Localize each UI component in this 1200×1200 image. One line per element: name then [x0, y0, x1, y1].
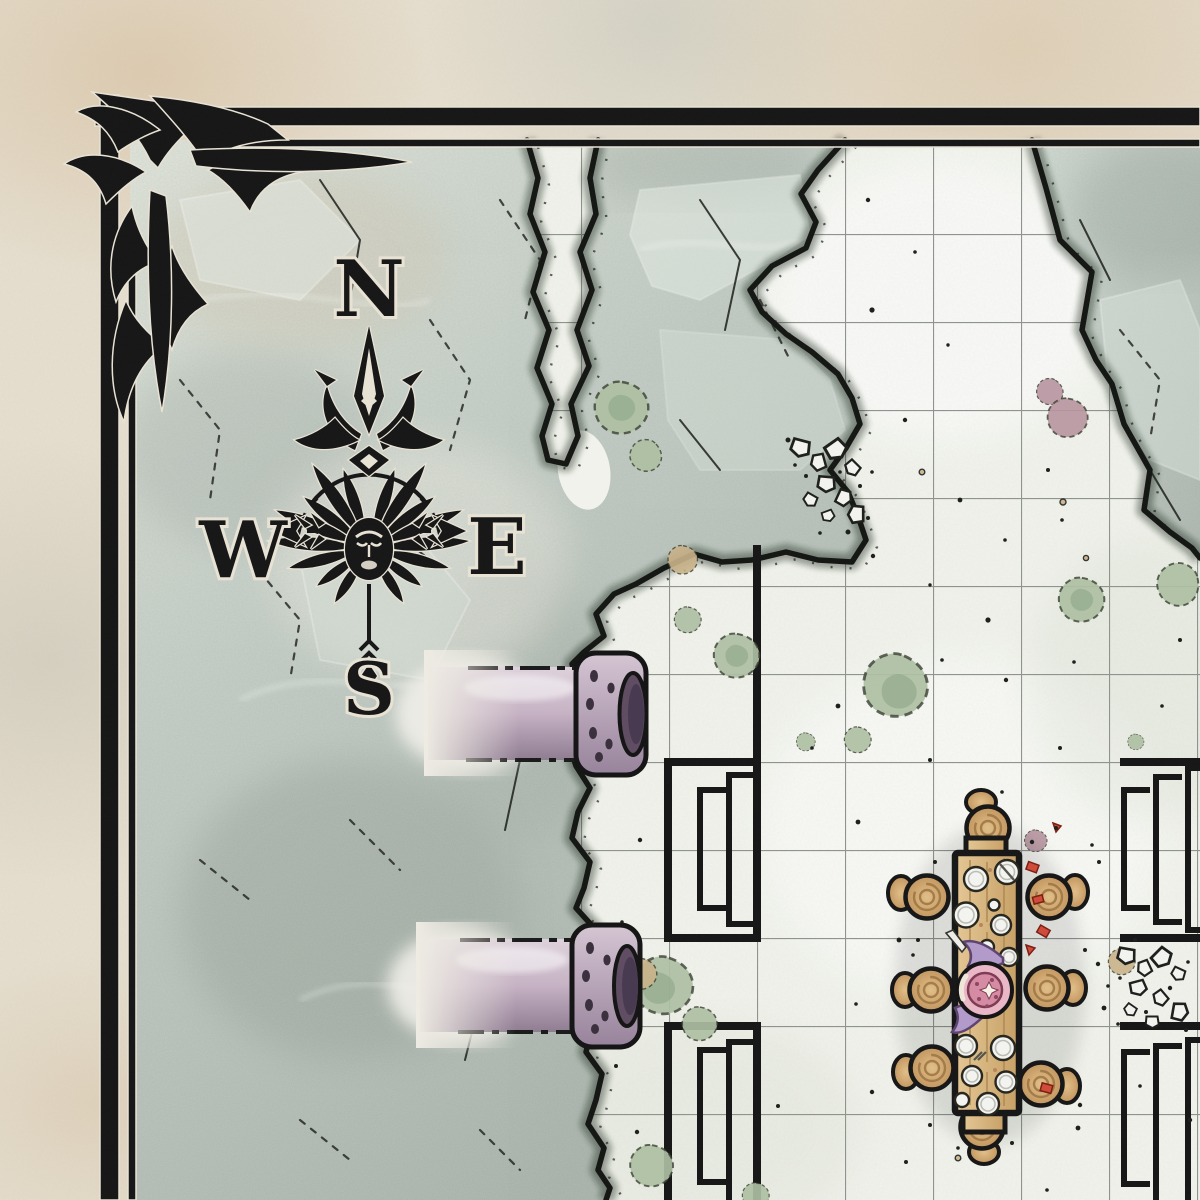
battle-map-art: N W E S [0, 0, 1200, 1200]
battle-map-stage: N W E S [0, 0, 1200, 1200]
print-grain-overlay [0, 0, 1200, 1200]
